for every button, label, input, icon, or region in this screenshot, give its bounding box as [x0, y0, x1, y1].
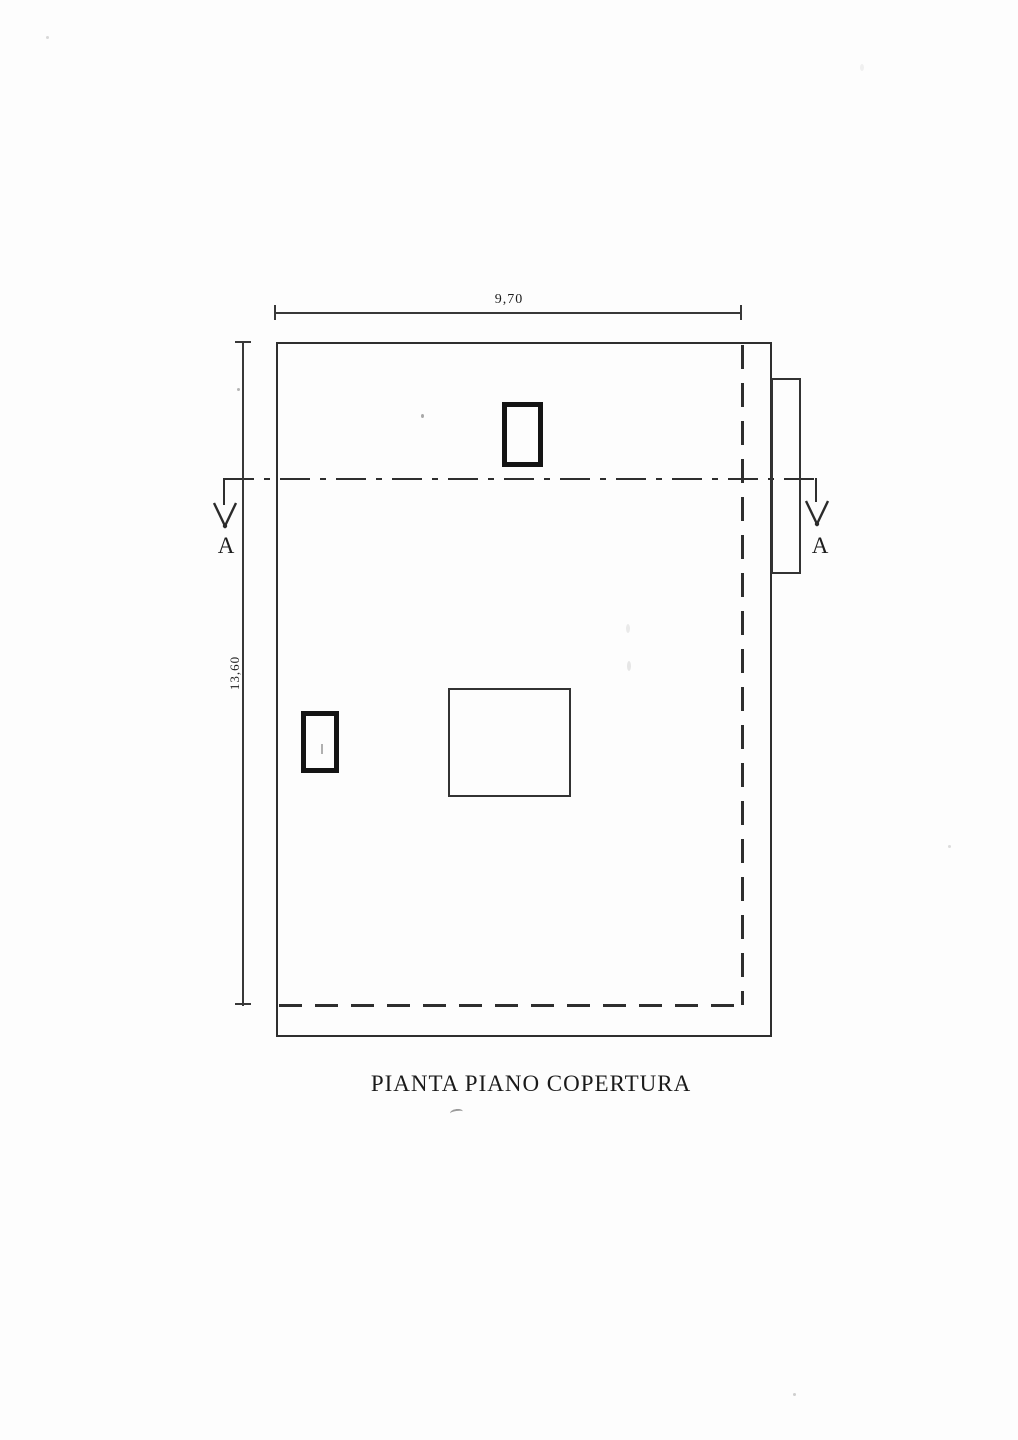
footprint-dashed-line-horizontal	[279, 1004, 743, 1007]
section-arrow-down-icon	[803, 499, 831, 529]
footprint-dashed-line-vertical	[741, 345, 744, 1005]
section-label-left: A	[212, 534, 240, 558]
scan-speck	[627, 661, 631, 671]
chimney-rect-left	[301, 711, 339, 773]
section-arrow-down-icon	[211, 501, 239, 531]
scan-speck	[46, 36, 49, 39]
drawing-title: PIANTA PIANO COPERTURA	[304, 1071, 758, 1097]
scan-speck	[948, 845, 951, 848]
dimension-tick	[740, 305, 742, 320]
dimension-label-left: 13,60	[224, 642, 246, 704]
dimension-tick	[235, 1003, 251, 1005]
scan-speck	[421, 414, 424, 418]
chimney-rect-top	[502, 402, 543, 467]
scan-speck	[321, 744, 323, 754]
right-annex-rect	[771, 378, 801, 574]
scanned-roof-plan-page: A A 9,70 13,60 PIANTA PIANO COPERTURA	[0, 0, 1018, 1440]
section-label-right: A	[806, 534, 834, 558]
skylight-rect	[448, 688, 571, 797]
scan-speck	[793, 1393, 796, 1396]
scan-speck	[860, 64, 864, 71]
scan-smudge	[450, 1108, 464, 1117]
dimension-label-top: 9,70	[478, 292, 540, 308]
section-cut-line	[224, 478, 818, 480]
dimension-tick	[274, 305, 276, 320]
dimension-line-top	[275, 312, 742, 314]
scan-speck	[626, 624, 630, 633]
dimension-tick	[235, 341, 251, 343]
scan-speck	[237, 388, 240, 391]
